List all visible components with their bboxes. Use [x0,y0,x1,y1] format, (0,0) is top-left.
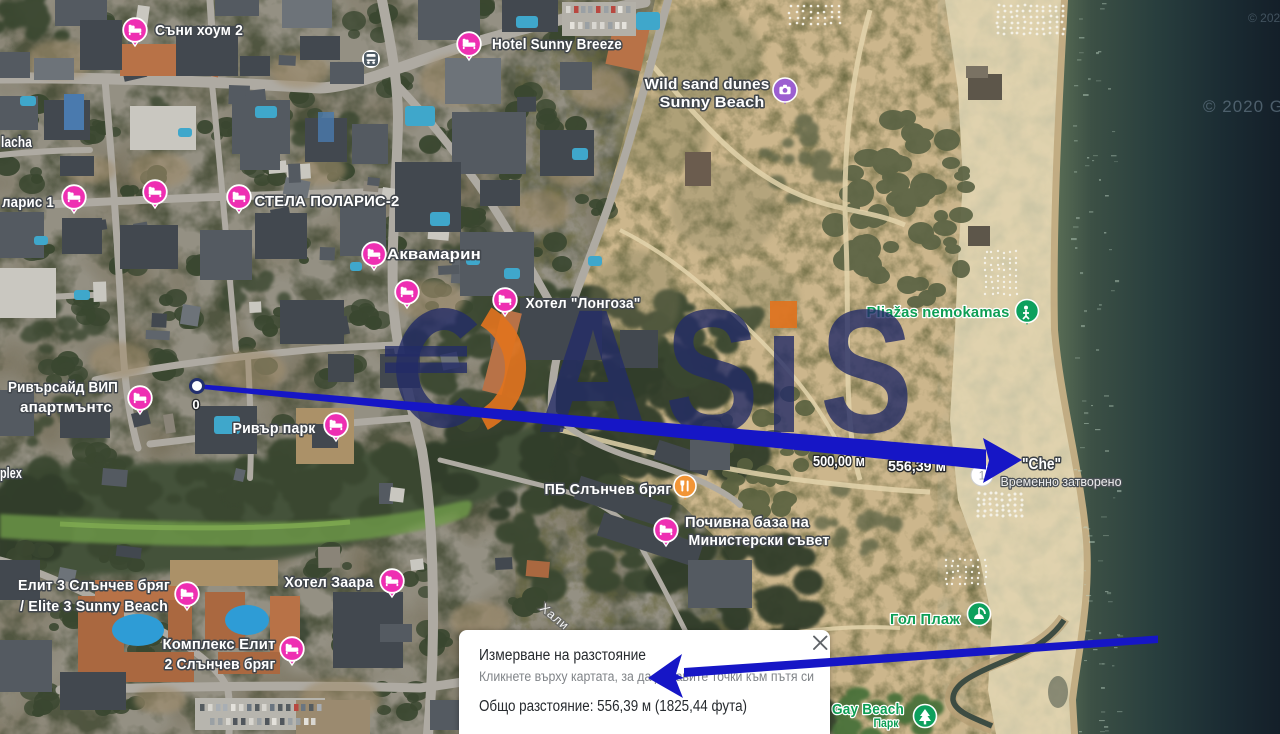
svg-text:Ривърсайд ВИП: Ривърсайд ВИП [8,379,118,396]
svg-text:Wild sand dunes: Wild sand dunes [645,76,770,93]
svg-text:Ривър парк: Ривър парк [233,420,316,437]
svg-text:Министерски съвет: Министерски съвет [689,532,830,549]
svg-text:ПБ Слънчев бряг: ПБ Слънчев бряг [545,481,672,498]
svg-text:апартмънтс: апартмънтс [20,399,112,416]
svg-text:Почивна база на: Почивна база на [685,514,809,531]
svg-text:"Che": "Che" [1022,456,1061,473]
svg-text:2 Слънчев бряг: 2 Слънчев бряг [165,656,276,673]
svg-text:Hotel Sunny Breeze: Hotel Sunny Breeze [492,36,622,53]
svg-text:Общо разстояние: 556,39 м (182: Общо разстояние: 556,39 м (1825,44 фута) [479,698,747,715]
svg-text:Комплекс Елит: Комплекс Елит [163,636,276,653]
svg-text:© 2020 Go: © 2020 Go [1203,97,1280,116]
svg-text:Измерване на разстояние: Измерване на разстояние [479,647,646,664]
svg-text:ларис 1: ларис 1 [2,194,54,211]
svg-text:A: A [536,274,650,470]
svg-text:lacha: lacha [1,134,32,151]
svg-text:Съни хоум 2: Съни хоум 2 [155,22,243,39]
svg-text:Временно затворено: Временно затворено [1001,474,1122,489]
svg-text:Парк: Парк [874,716,900,730]
svg-text:plex: plex [0,465,22,482]
svg-text:Sunny Beach: Sunny Beach [660,94,765,111]
svg-text:© 202: © 202 [1248,11,1280,25]
svg-text:/ Elite 3 Sunny Beach: / Elite 3 Sunny Beach [20,598,168,615]
svg-text:Гол Плаж: Гол Плаж [890,612,961,628]
svg-text:СТЕЛА ПОЛАРИС-2: СТЕЛА ПОЛАРИС-2 [255,193,400,210]
svg-text:Елит 3 Слънчев бряг: Елит 3 Слънчев бряг [18,577,170,594]
svg-text:Аквамарин: Аквамарин [387,246,481,263]
svg-text:Хотел Заара: Хотел Заара [285,574,374,591]
svg-text:0: 0 [192,397,199,412]
